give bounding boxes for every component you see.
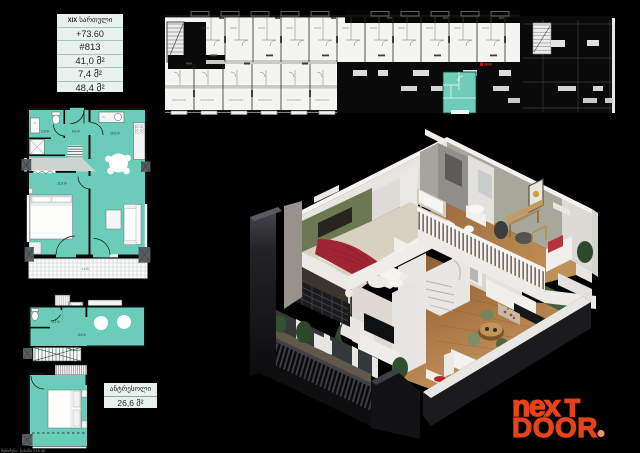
svg-text:11.6 მ²: 11.6 მ² [57, 182, 67, 186]
svg-text:2.9 მ²: 2.9 მ² [41, 130, 49, 134]
svg-text:7.4 მ²: 7.4 მ² [81, 267, 89, 271]
svg-text:8.6 მ²: 8.6 მ² [72, 130, 80, 134]
svg-text:8.6 მ²: 8.6 მ² [78, 333, 86, 337]
svg-text:19.9 მ²: 19.9 მ² [110, 132, 120, 136]
svg-text:DOOR: DOOR [512, 412, 598, 443]
